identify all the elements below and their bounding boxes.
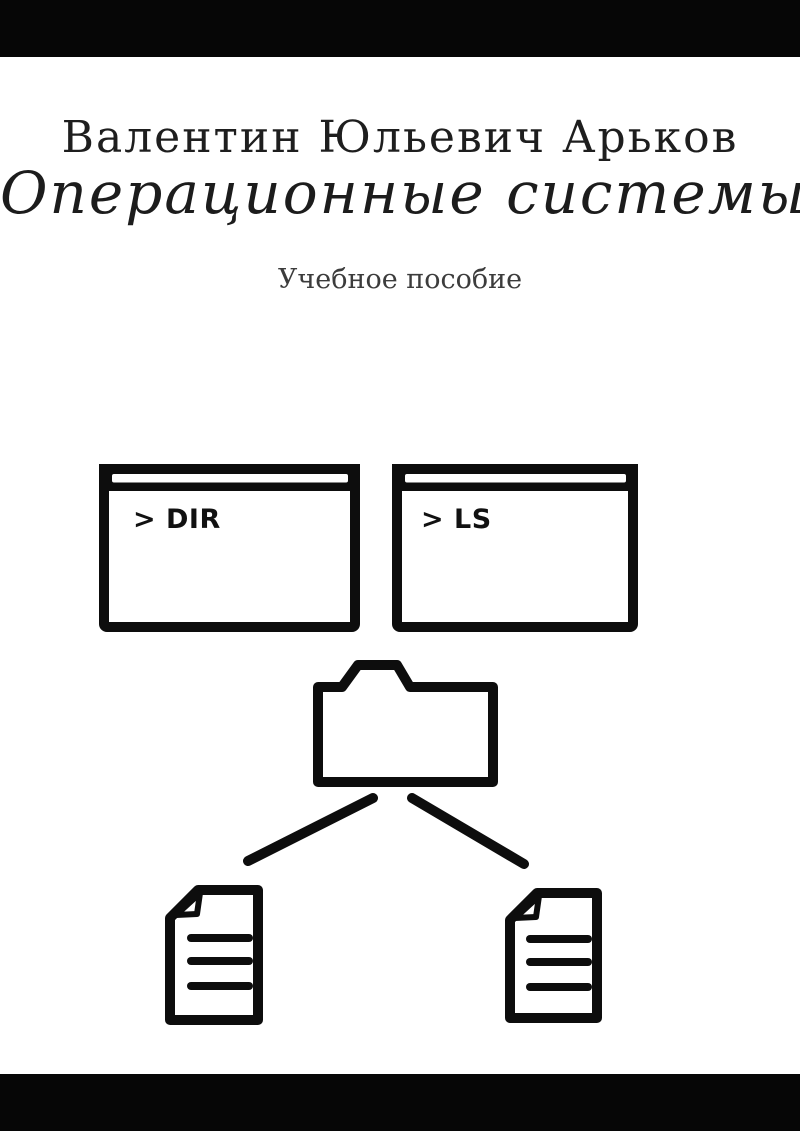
cover-illustration: > DIR > LS	[0, 0, 800, 1131]
command-text-ls: > LS	[421, 504, 492, 535]
folder-icon	[318, 665, 493, 782]
connector-line-right	[412, 798, 524, 864]
book-cover: Валентин Юльевич Арьков Операционные сис…	[0, 0, 800, 1131]
command-text-dir: > DIR	[133, 504, 221, 535]
terminal-frame	[397, 469, 633, 627]
bottom-band	[0, 1074, 800, 1131]
terminal-window-dir-icon: > DIR	[99, 464, 360, 627]
document-icon-left	[170, 890, 258, 1020]
document-icon-right	[510, 893, 597, 1018]
terminal-titlebar-slot	[405, 474, 626, 483]
terminal-frame	[104, 469, 355, 627]
terminal-window-ls-icon: > LS	[392, 464, 638, 627]
connector-line-left	[248, 798, 373, 861]
terminal-titlebar-slot	[112, 474, 348, 483]
folder-shape	[318, 665, 493, 782]
